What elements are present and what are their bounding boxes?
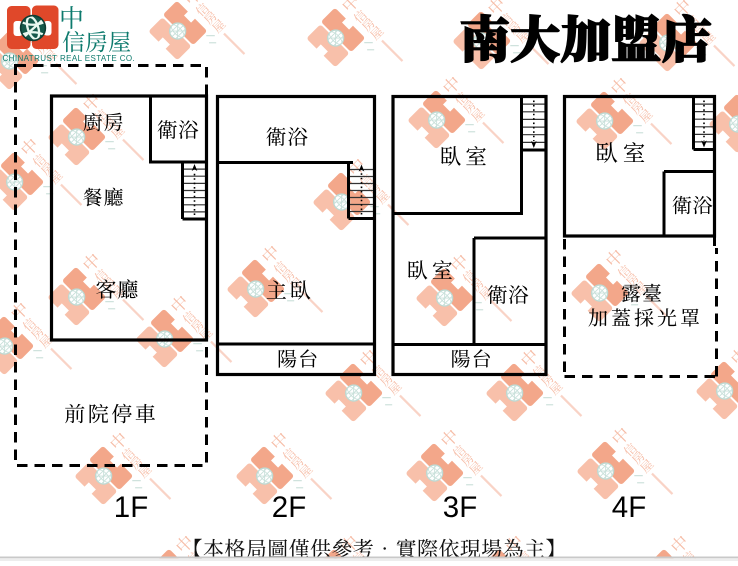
svg-text:4F: 4F (612, 491, 646, 524)
svg-text:CHINATRUST REAL ESTATE CO.: CHINATRUST REAL ESTATE CO. (3, 54, 136, 63)
svg-text:3F: 3F (443, 491, 477, 524)
svg-text:2F: 2F (272, 491, 306, 524)
svg-text:1F: 1F (114, 491, 148, 524)
